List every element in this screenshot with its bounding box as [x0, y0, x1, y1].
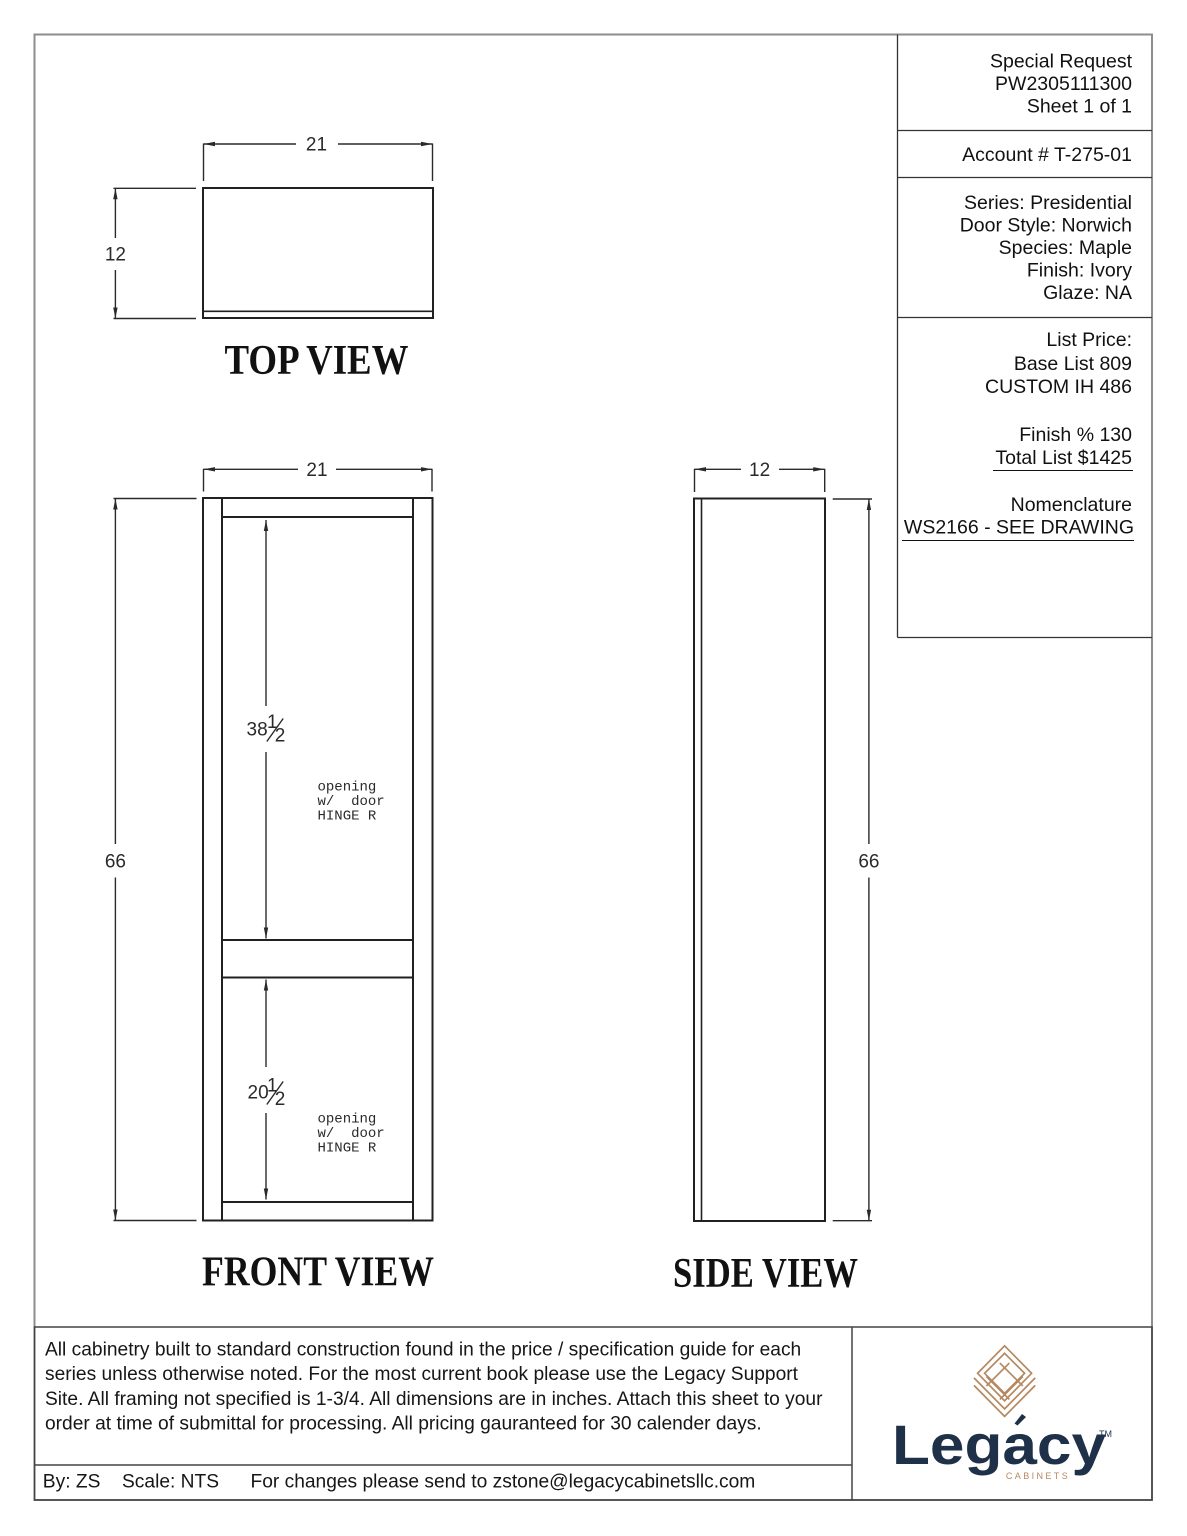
- svg-text:Scale: NTS: Scale: NTS: [122, 1472, 219, 1493]
- svg-text:All cabinetry built to standar: All cabinetry built to standard construc…: [45, 1340, 801, 1361]
- svg-text:12: 12: [105, 245, 126, 266]
- svg-text:Site. All framing not specifie: Site. All framing not specified is 1-3/4…: [45, 1389, 823, 1410]
- svg-text:Total List $1425: Total List $1425: [995, 447, 1132, 469]
- svg-text:21: 21: [306, 135, 327, 156]
- svg-text:Glaze: NA: Glaze: NA: [1043, 282, 1132, 304]
- svg-text:CABINETS: CABINETS: [1006, 1471, 1070, 1481]
- svg-text:21: 21: [306, 460, 327, 481]
- svg-text:Nomenclature: Nomenclature: [1011, 494, 1132, 516]
- svg-text:Finish % 130: Finish % 130: [1019, 424, 1132, 446]
- svg-text:Account # T-275-01: Account # T-275-01: [962, 144, 1132, 166]
- svg-text:Species: Maple: Species: Maple: [999, 237, 1132, 259]
- svg-text:CUSTOM IH 486: CUSTOM IH 486: [985, 376, 1132, 398]
- svg-text:WS2166 - SEE DRAWING: WS2166 - SEE DRAWING: [904, 517, 1134, 539]
- svg-text:FRONT VIEW: FRONT VIEW: [202, 1250, 434, 1296]
- svg-text:HINGE R: HINGE R: [318, 808, 377, 824]
- svg-text:66: 66: [105, 852, 126, 873]
- svg-text:HINGE R: HINGE R: [318, 1141, 377, 1157]
- svg-text:SIDE VIEW: SIDE VIEW: [673, 1251, 858, 1297]
- svg-text:20: 20: [248, 1082, 269, 1103]
- svg-text:PW2305111300: PW2305111300: [995, 73, 1132, 95]
- svg-text:Special Request: Special Request: [990, 51, 1133, 73]
- svg-text:2: 2: [275, 1089, 286, 1110]
- svg-text:Base List 809: Base List 809: [1014, 353, 1132, 375]
- svg-text:series unless otherwise noted.: series unless otherwise noted. For the m…: [45, 1364, 799, 1385]
- svg-text:38: 38: [247, 720, 268, 741]
- svg-text:w/ door: w/ door: [318, 1126, 385, 1142]
- svg-text:By: ZS: By: ZS: [43, 1472, 101, 1493]
- svg-text:For changes please send to zst: For changes please send to zstone@legacy…: [251, 1472, 756, 1493]
- svg-text:Sheet 1 of 1: Sheet 1 of 1: [1027, 96, 1132, 118]
- svg-text:Door Style: Norwich: Door Style: Norwich: [960, 215, 1132, 237]
- svg-text:List Price:: List Price:: [1046, 329, 1132, 351]
- svg-text:Series: Presidential: Series: Presidential: [964, 192, 1132, 214]
- svg-text:Finish: Ivory: Finish: Ivory: [1027, 260, 1132, 282]
- svg-text:66: 66: [858, 851, 879, 872]
- svg-text:12: 12: [749, 460, 770, 481]
- svg-text:TOP VIEW: TOP VIEW: [225, 338, 409, 384]
- svg-text:TM: TM: [1099, 1429, 1112, 1439]
- svg-text:order at time of submittal for: order at time of submittal for processin…: [45, 1414, 762, 1435]
- svg-text:Legacy: Legacy: [892, 1413, 1106, 1476]
- svg-text:2: 2: [275, 726, 286, 747]
